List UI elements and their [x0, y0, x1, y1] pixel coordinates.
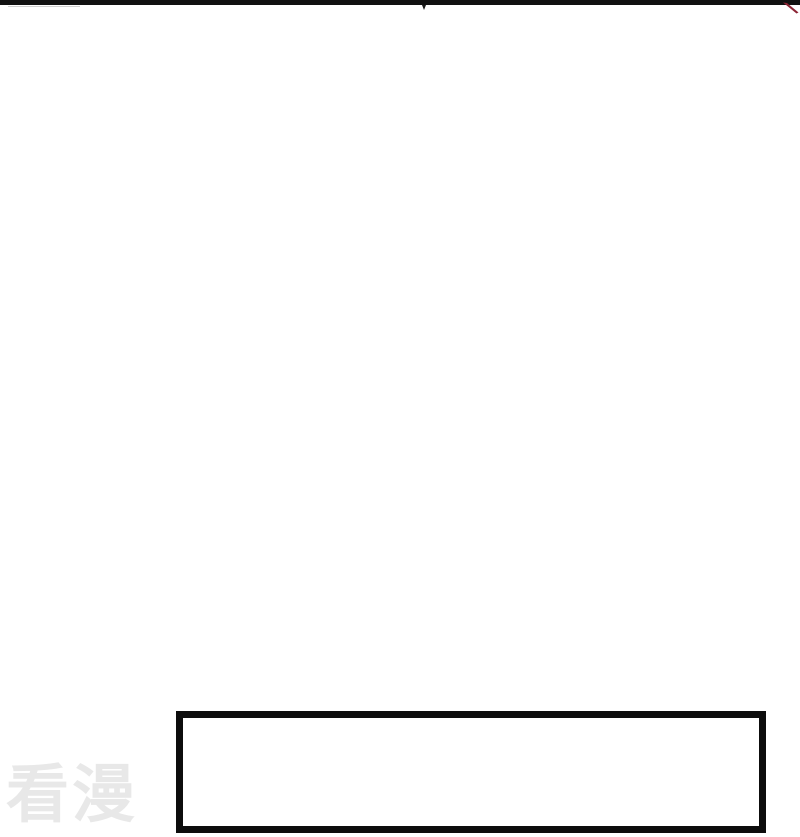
faint-sketch-line [8, 6, 80, 7]
panel-edge-notch [422, 5, 426, 10]
red-ink-stroke-icon [780, 0, 800, 16]
panel-top-edge [0, 0, 800, 5]
site-watermark: 看漫 [6, 759, 138, 831]
speech-caption-box [176, 711, 766, 833]
comic-page: 看漫 [0, 0, 800, 837]
